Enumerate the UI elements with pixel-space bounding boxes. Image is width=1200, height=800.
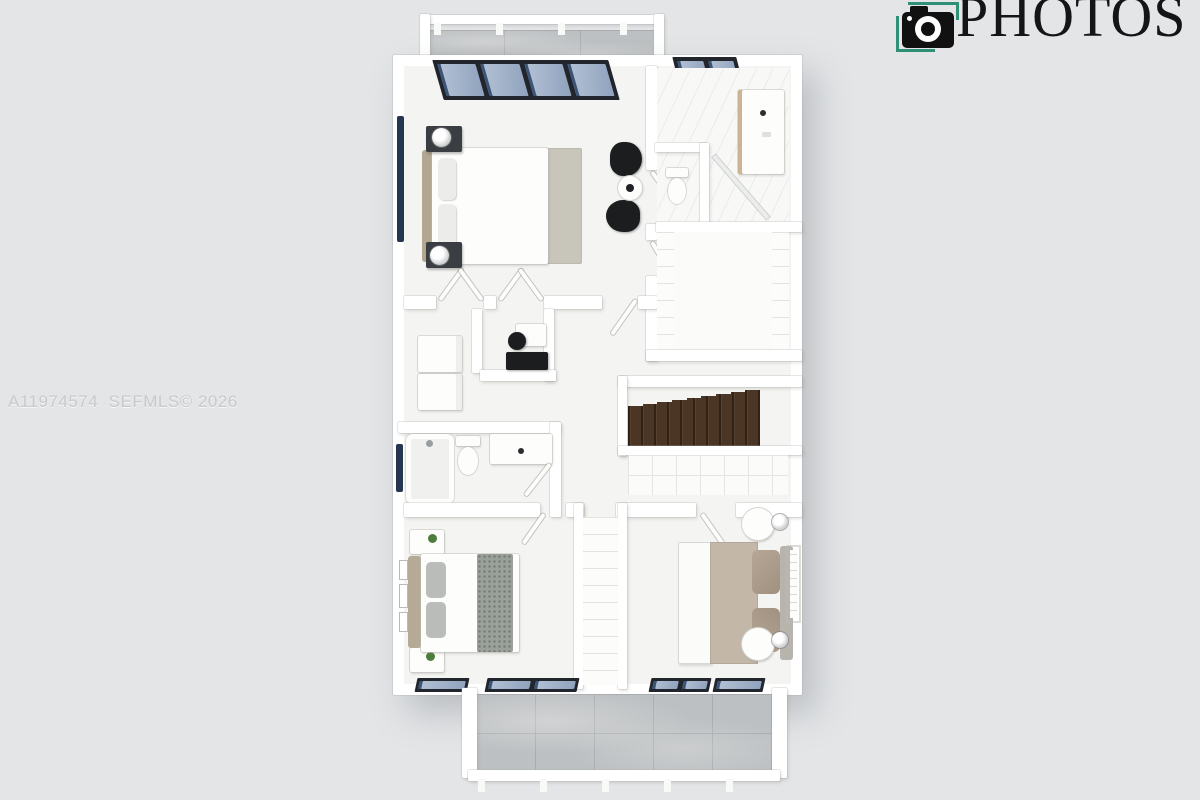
bed-foot-blanket	[678, 542, 712, 664]
listing-id: A11974574	[8, 392, 98, 411]
console-table	[787, 546, 800, 622]
glass-pane	[481, 64, 528, 96]
bathroom-window	[396, 444, 403, 492]
primary-bed-pillow	[438, 204, 456, 246]
glass-pane	[534, 681, 576, 689]
table-lamp	[772, 514, 788, 530]
desk-chair	[508, 332, 526, 350]
table-lamp	[772, 632, 788, 648]
wall	[484, 296, 496, 309]
glass-pane	[716, 681, 762, 689]
wall	[616, 503, 696, 517]
glass-pane	[418, 681, 466, 689]
accent-chair	[610, 142, 642, 176]
wall	[618, 376, 802, 387]
wall-art-frame	[399, 560, 408, 580]
vanity-sink-drain	[518, 448, 524, 454]
wall	[480, 370, 556, 381]
table-lamp	[432, 128, 451, 147]
closet-shelves-right	[772, 232, 789, 350]
bedroom-2-sliding-door	[485, 678, 580, 692]
toilet-tank	[666, 168, 688, 177]
primary-bedroom-sliding-door	[432, 60, 619, 100]
washer	[418, 336, 462, 372]
linen-closet-shelves	[583, 517, 618, 685]
bed-headboard	[408, 556, 421, 648]
glass-pane	[567, 64, 614, 96]
vanity-sink-drain	[760, 110, 766, 116]
plant	[428, 534, 437, 543]
bedroom-3-sliding-door	[649, 678, 712, 692]
watermark: A11974574 SEFMLS© 2026	[8, 392, 238, 412]
watermark-spacer	[98, 392, 108, 411]
wall	[472, 309, 482, 373]
wall	[618, 376, 627, 456]
balcony-bottom-floor	[476, 694, 772, 772]
bedroom-3-window	[713, 678, 766, 692]
under-stair-shelves	[628, 455, 788, 495]
toilet-tank	[456, 436, 480, 446]
dryer	[418, 374, 462, 410]
glass-pane	[652, 681, 678, 689]
tub-faucet	[426, 440, 433, 447]
wall	[618, 446, 802, 455]
glass-pane	[488, 681, 530, 689]
primary-bed-pillow	[438, 158, 456, 200]
round-side-table	[742, 508, 774, 540]
side-table-top-dot	[626, 184, 634, 192]
wall	[638, 296, 657, 309]
nightstand	[410, 530, 444, 554]
wall	[700, 143, 709, 231]
bed-pillow	[426, 602, 446, 638]
desk-return	[506, 352, 548, 370]
wall	[646, 66, 657, 170]
bed-runner	[477, 554, 513, 652]
balcony-bottom-side-wall-right	[772, 688, 787, 778]
vanity-accessory	[762, 132, 771, 137]
glass-pane	[437, 64, 484, 96]
camera-flash-dot	[907, 16, 912, 21]
table-lamp	[430, 246, 449, 265]
wall	[398, 422, 560, 433]
wall-art-frame	[399, 584, 408, 608]
wall	[404, 503, 540, 517]
wall	[404, 296, 436, 309]
bed-pillow	[426, 562, 446, 598]
wall	[646, 350, 802, 361]
accent-chair	[606, 200, 640, 232]
plant	[426, 652, 435, 661]
camera-icon-ridge	[910, 6, 928, 15]
bathroom-vanity	[738, 90, 784, 174]
closet-shelves-left	[657, 232, 674, 350]
balcony-bottom-side-wall-left	[462, 688, 477, 778]
camera-lens-inner	[921, 22, 935, 36]
mls-copyright: SEFMLS© 2026	[109, 392, 238, 411]
walk-in-closet-floor	[657, 232, 789, 350]
wall-art-frame	[399, 612, 408, 632]
brand-name: PHOTOS	[956, 0, 1187, 50]
primary-bedroom-side-window	[397, 116, 404, 242]
bed-pillow	[752, 550, 780, 594]
wall	[544, 296, 602, 309]
round-side-table	[742, 628, 774, 660]
toilet-bowl	[668, 178, 686, 204]
floor-plan-photo: A11974574 SEFMLS© 2026 PHOTOS	[0, 0, 1200, 800]
toilet-bowl	[458, 447, 478, 475]
balcony-bottom-posts	[478, 779, 772, 792]
wall	[574, 503, 583, 689]
balcony-top-posts	[434, 23, 654, 35]
wall	[618, 503, 627, 689]
wall	[656, 222, 802, 232]
wall	[646, 276, 657, 361]
glass-pane	[682, 681, 708, 689]
glass-pane	[524, 64, 571, 96]
